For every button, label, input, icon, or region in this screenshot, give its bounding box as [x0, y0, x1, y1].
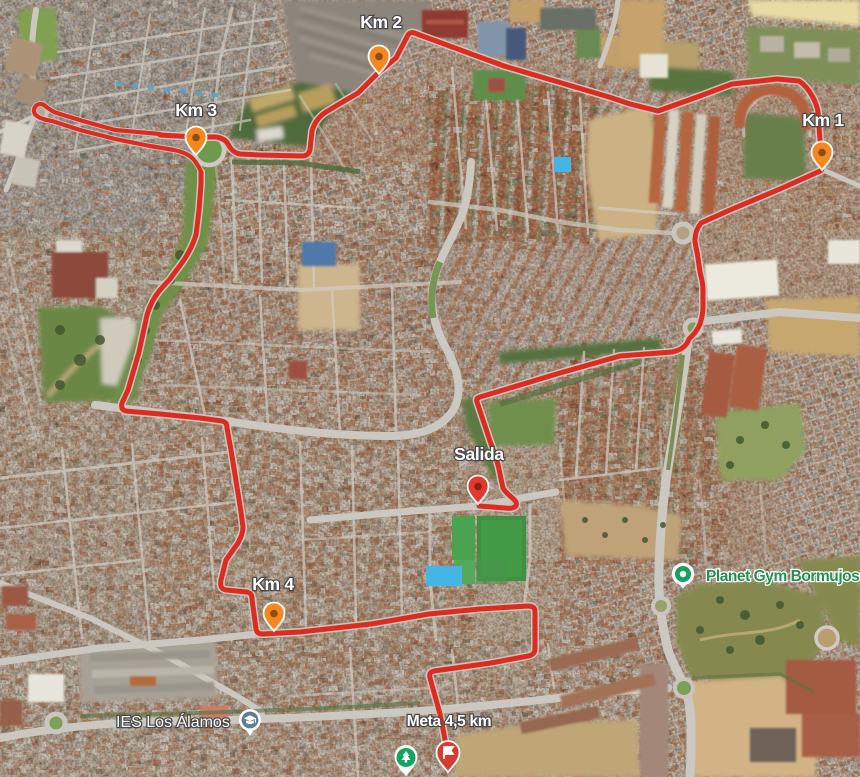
svg-text:IES Los Álamos: IES Los Álamos [116, 712, 230, 731]
svg-text:Km 1: Km 1 [802, 110, 844, 130]
svg-text:Km 3: Km 3 [175, 100, 217, 120]
svg-text:Planet Gym Bormujos: Planet Gym Bormujos [706, 568, 859, 585]
svg-text:Meta 4,5 km: Meta 4,5 km [407, 713, 492, 730]
svg-text:Km 4: Km 4 [252, 574, 294, 594]
svg-text:Km 2: Km 2 [360, 12, 402, 32]
svg-text:Salida: Salida [454, 444, 504, 464]
